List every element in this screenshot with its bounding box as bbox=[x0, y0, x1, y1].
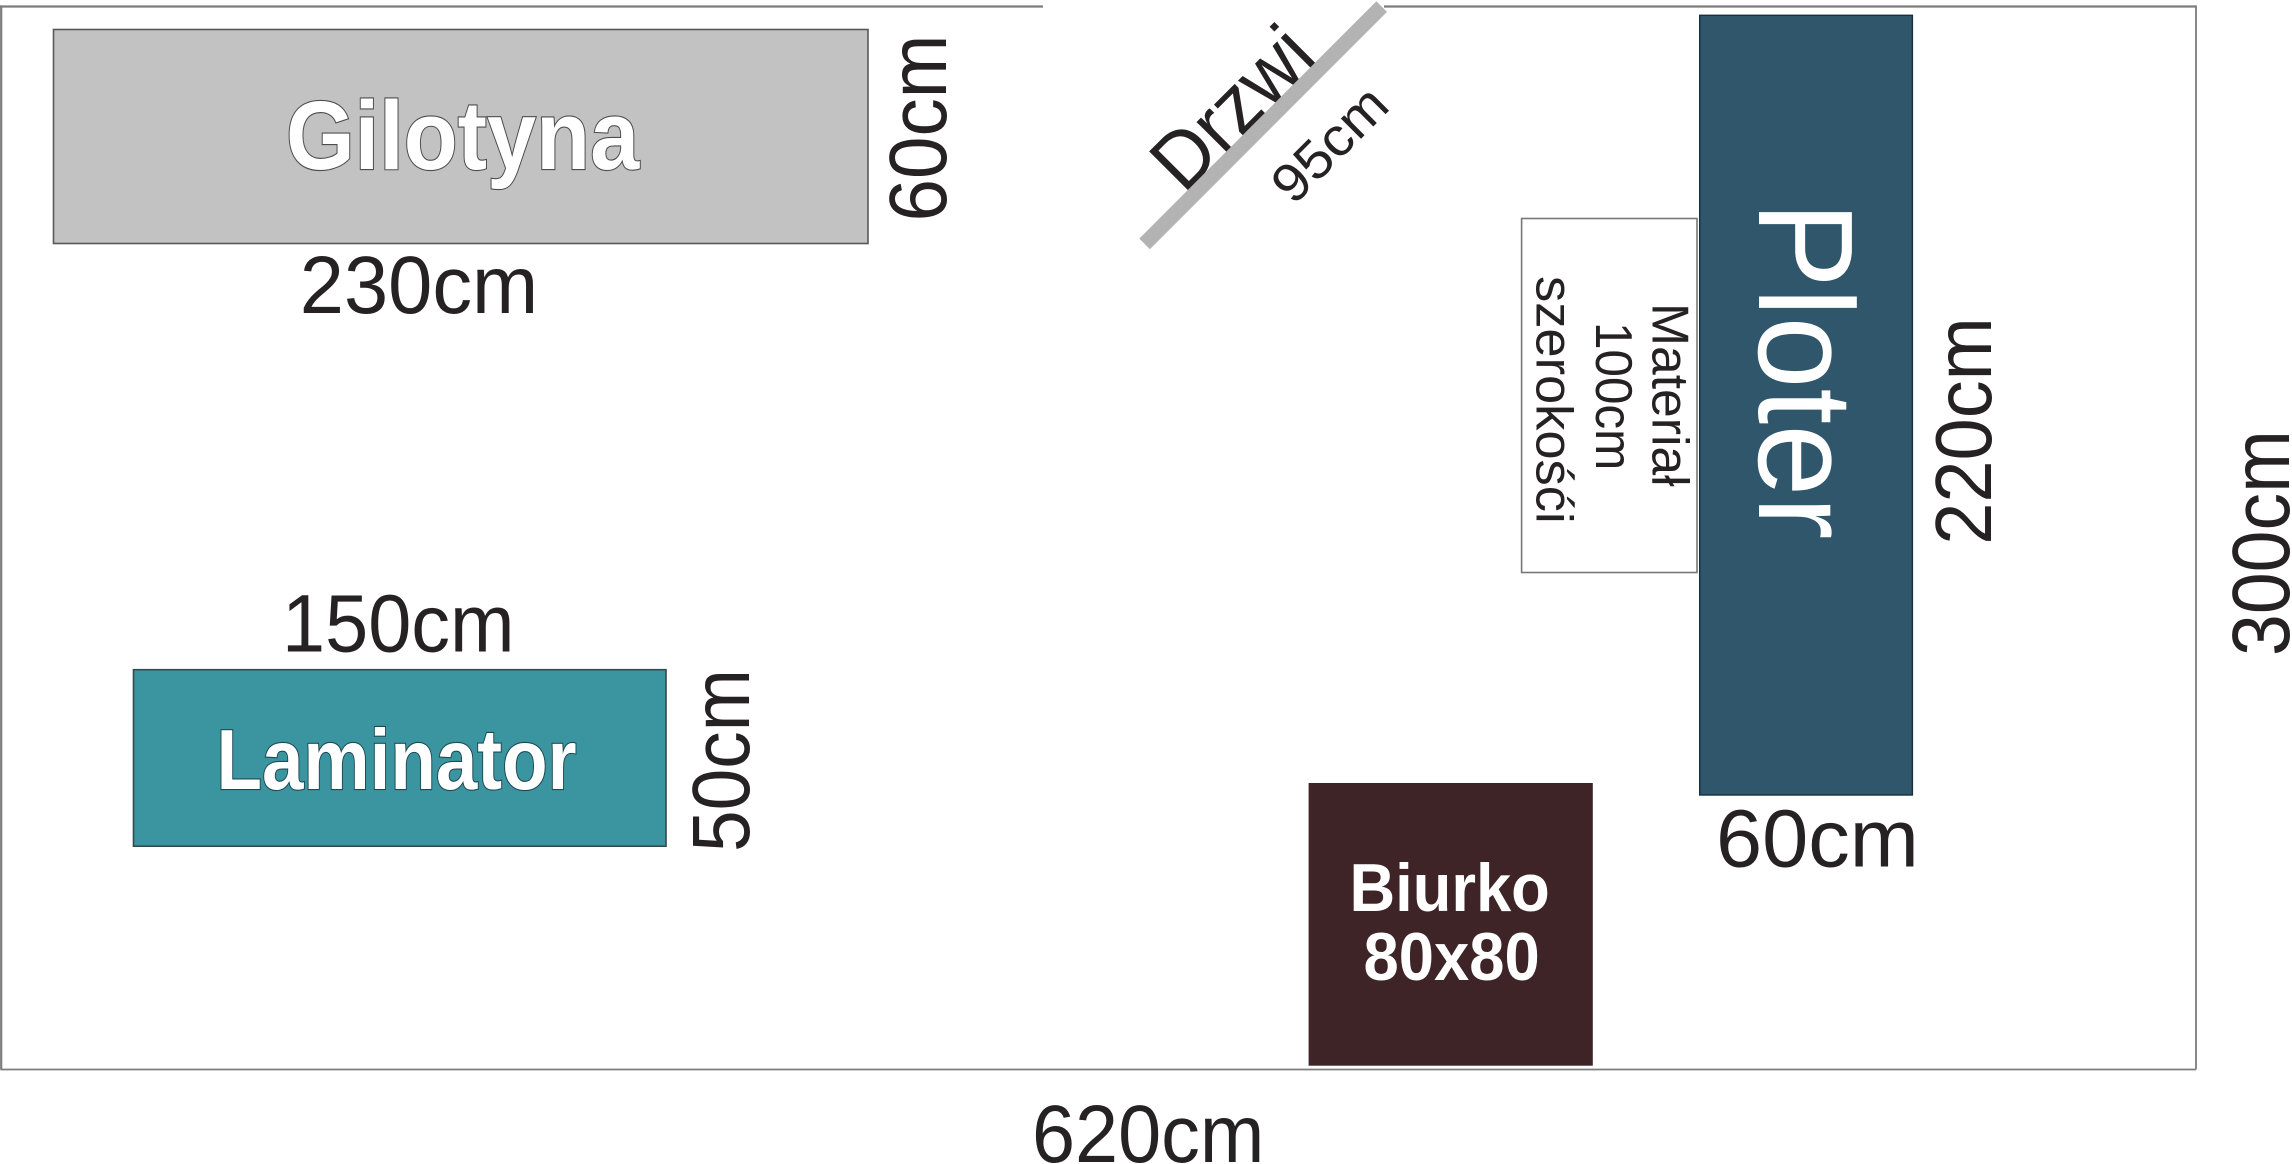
svg-text:Materiał: Materiał bbox=[1641, 303, 1699, 487]
svg-text:Gilotyna: Gilotyna bbox=[286, 81, 640, 190]
svg-text:Ploter: Ploter bbox=[1730, 202, 1881, 540]
svg-text:230cm: 230cm bbox=[300, 240, 538, 331]
svg-text:Biurko: Biurko bbox=[1350, 850, 1550, 926]
svg-text:620cm: 620cm bbox=[1032, 1089, 1264, 1164]
svg-text:100cm: 100cm bbox=[1584, 322, 1642, 470]
svg-text:50cm: 50cm bbox=[676, 669, 767, 852]
svg-text:Laminator: Laminator bbox=[217, 713, 577, 808]
svg-text:80x80: 80x80 bbox=[1364, 919, 1540, 995]
svg-text:szerokośći: szerokośći bbox=[1525, 276, 1583, 524]
svg-text:300cm: 300cm bbox=[2216, 430, 2292, 656]
svg-text:60cm: 60cm bbox=[1716, 794, 1919, 885]
svg-text:150cm: 150cm bbox=[282, 579, 515, 670]
svg-text:220cm: 220cm bbox=[1919, 317, 2008, 545]
svg-text:60cm: 60cm bbox=[873, 35, 964, 222]
